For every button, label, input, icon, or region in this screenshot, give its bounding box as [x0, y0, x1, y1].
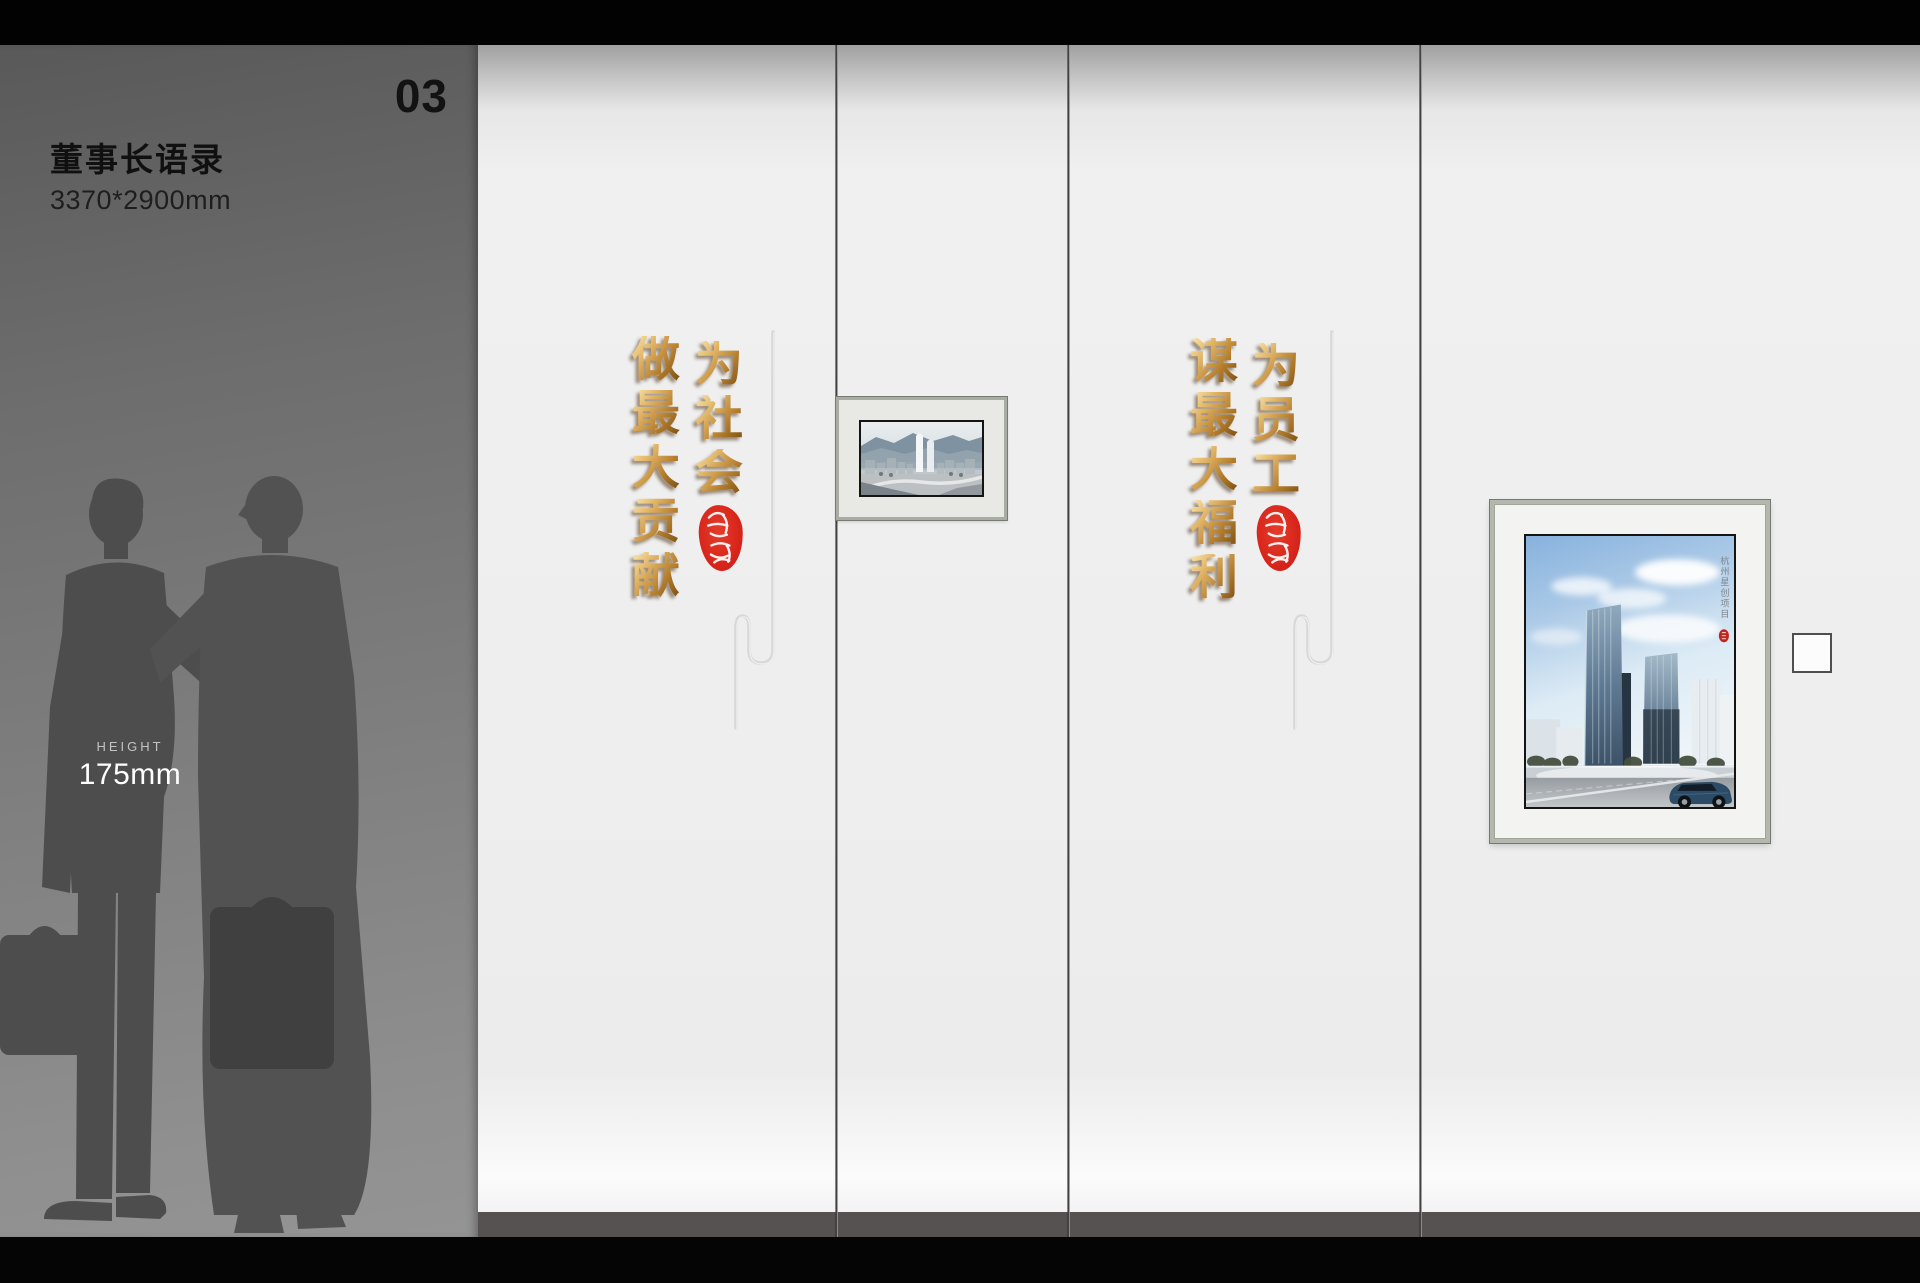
- gold-character: 利: [1190, 554, 1238, 602]
- dimensions-label: 3370*2900mm: [50, 185, 231, 216]
- businessmen-silhouette: [0, 457, 478, 1237]
- gold-character: 最: [632, 390, 680, 438]
- panel-divider: [1067, 45, 1070, 1237]
- height-caption: HEIGHT: [60, 739, 200, 754]
- towers-rendering-photo: 杭州星创项目: [1524, 534, 1736, 809]
- wall-elevation: 做最大贡献 为社会: [478, 45, 1920, 1237]
- gold-character: 福: [1190, 500, 1238, 548]
- wall-skirting: [478, 1212, 1920, 1237]
- cityscape-photo: [859, 420, 984, 497]
- hook-line-ornament: [1284, 328, 1344, 738]
- panel-divider: [1419, 45, 1422, 1237]
- gold-character: 贡: [632, 498, 680, 546]
- page-title: 董事长语录: [50, 133, 225, 181]
- large-picture-frame: 杭州星创项目: [1490, 500, 1770, 843]
- quote-column: 做最大贡献: [627, 336, 685, 600]
- bottom-black-bar: [0, 1237, 1920, 1283]
- info-panel: 03 董事长语录 3370*2900mm: [0, 45, 480, 1237]
- wall-switch-plate: [1792, 633, 1832, 673]
- design-board: 03 董事长语录 3370*2900mm: [0, 0, 1920, 1283]
- quote-column: 谋最大福利: [1185, 338, 1243, 602]
- quote-group-society: 做最大贡献 为社会: [627, 328, 787, 788]
- gold-character: 大: [1190, 446, 1238, 494]
- small-picture-frame: [836, 397, 1007, 520]
- car: [1669, 782, 1732, 807]
- quote-group-employees: 谋最大福利 为员工: [1185, 328, 1345, 788]
- photo-caption: 杭州星创项目: [1719, 555, 1730, 619]
- gold-character: 大: [632, 444, 680, 492]
- gold-character: 献: [632, 552, 680, 600]
- gold-character: 做: [632, 336, 680, 384]
- height-value: 175mm: [60, 758, 200, 792]
- height-annotation: HEIGHT 175mm: [60, 739, 200, 792]
- sheet-number: 03: [395, 69, 448, 123]
- gold-character: 最: [1190, 392, 1238, 440]
- hook-line-ornament: [725, 328, 785, 738]
- panel-divider: [835, 45, 838, 1237]
- gold-character: 谋: [1190, 338, 1238, 386]
- top-black-bar: [0, 0, 1920, 45]
